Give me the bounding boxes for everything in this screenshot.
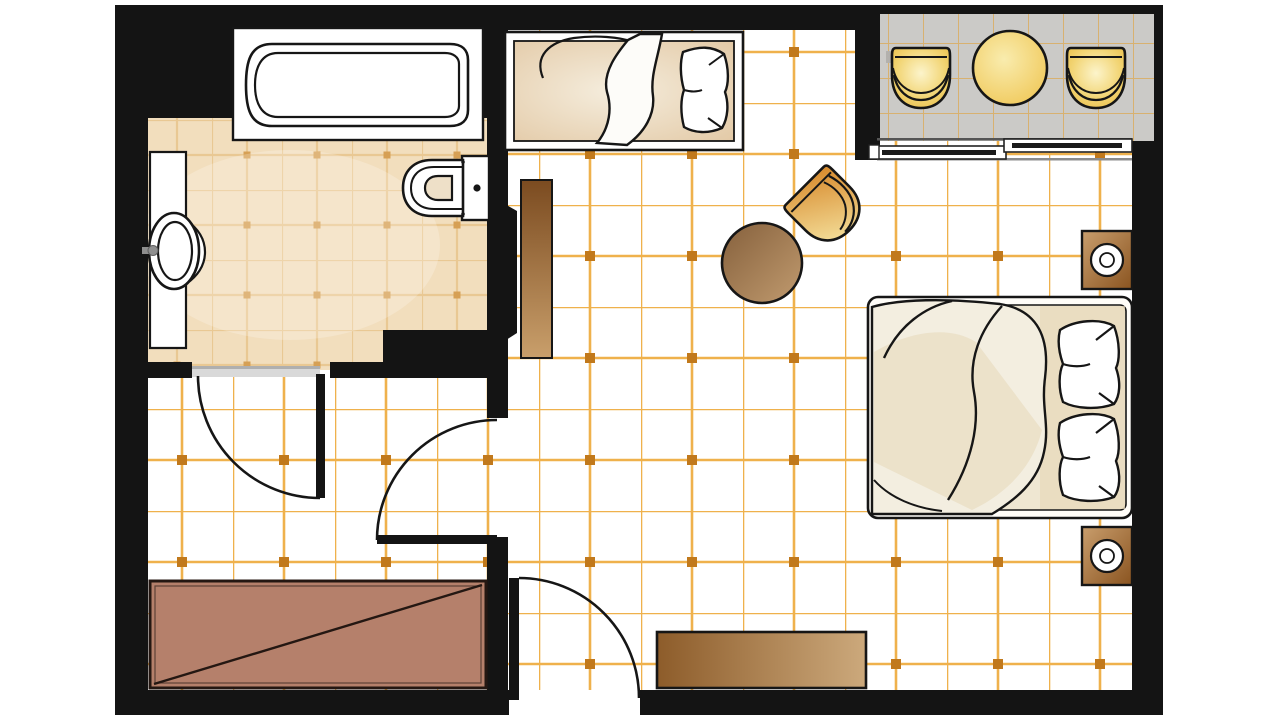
single-bed-pillow xyxy=(681,48,728,132)
sliding-door-handle xyxy=(869,145,879,159)
wall-bottom-right xyxy=(640,690,1163,715)
balcony-table xyxy=(973,31,1047,105)
bathroom-door-leaf xyxy=(316,374,325,498)
dressing-door-leaf xyxy=(377,535,497,544)
balcony-chair-left xyxy=(892,48,950,108)
entrance-door-leaf xyxy=(509,578,519,700)
toilet-seat xyxy=(425,176,452,200)
bathtub xyxy=(246,44,468,126)
wall-right xyxy=(1132,141,1163,715)
round-side-table xyxy=(722,223,802,303)
wall-balcony-right xyxy=(1154,5,1163,141)
floor-plan: Top-down floor plan of a hotel guest roo… xyxy=(0,0,1280,720)
toilet xyxy=(403,156,489,220)
balcony-chair-right xyxy=(1067,48,1125,108)
nightstand-lower xyxy=(1082,527,1132,585)
wall-bath-bottom-right xyxy=(330,362,507,378)
wall-bath-bottom-left xyxy=(148,362,192,378)
wall-balcony-separator xyxy=(855,5,880,160)
tall-wardrobe xyxy=(521,180,552,358)
wall-bath-corner xyxy=(148,28,233,118)
wall-bath-block xyxy=(383,330,507,364)
double-bed-pillow-top xyxy=(1059,321,1119,408)
double-bed-pillow-bottom xyxy=(1059,414,1119,501)
open-door-leaf xyxy=(503,203,517,342)
closet-wardrobe xyxy=(150,581,486,688)
faucet xyxy=(142,246,158,256)
wall-balcony-top xyxy=(875,5,1163,14)
wall-divider-lower xyxy=(487,537,508,715)
double-bed xyxy=(868,297,1132,518)
wall-left xyxy=(115,5,148,715)
nightstand-upper xyxy=(1082,231,1132,289)
wall-bottom-left xyxy=(115,690,509,715)
single-bed xyxy=(505,32,743,150)
floor-doorway-tiles xyxy=(487,418,507,537)
dresser-console xyxy=(657,632,866,688)
